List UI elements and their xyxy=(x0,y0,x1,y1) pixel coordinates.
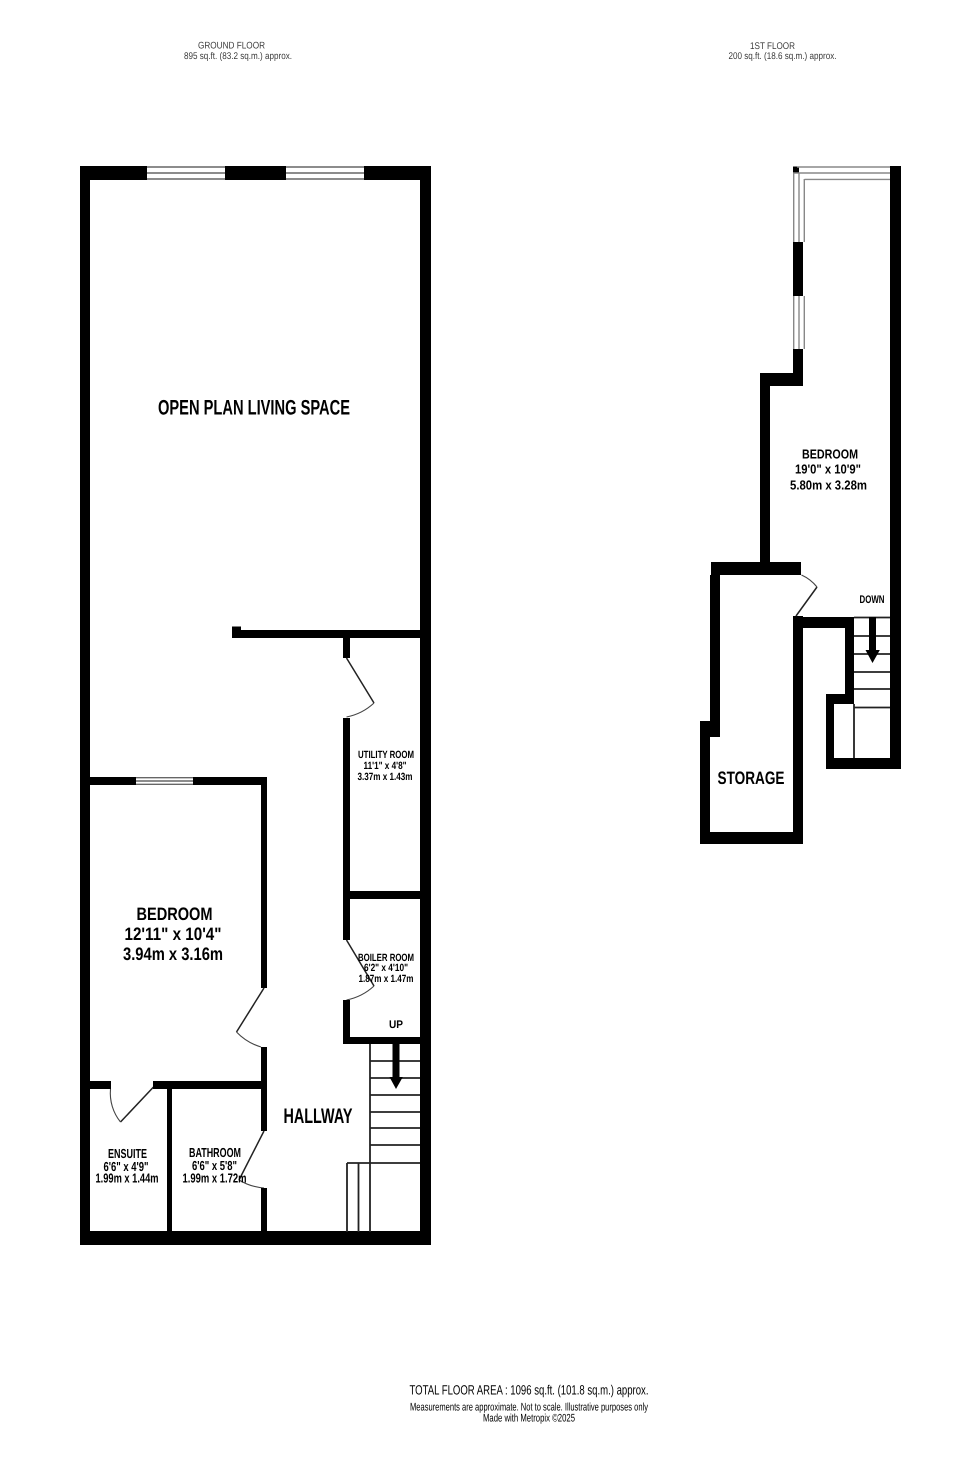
svg-text:STORAGE: STORAGE xyxy=(718,768,785,788)
svg-text:12'11" x 10'4": 12'11" x 10'4" xyxy=(125,924,222,944)
svg-text:3.94m x 3.16m: 3.94m x 3.16m xyxy=(123,944,223,964)
svg-text:1.99m x 1.72m: 1.99m x 1.72m xyxy=(183,1171,247,1186)
svg-text:5.80m x 3.28m: 5.80m x 3.28m xyxy=(790,478,867,493)
svg-text:OPEN PLAN LIVING SPACE: OPEN PLAN LIVING SPACE xyxy=(158,396,350,419)
svg-text:BEDROOM: BEDROOM xyxy=(802,447,858,462)
svg-text:TOTAL FLOOR AREA : 1096 sq.ft.: TOTAL FLOOR AREA : 1096 sq.ft. (101.8 sq… xyxy=(410,1382,649,1397)
svg-text:Made with Metropix ©2025: Made with Metropix ©2025 xyxy=(483,1412,575,1424)
svg-text:19'0" x 10'9": 19'0" x 10'9" xyxy=(795,462,861,477)
svg-text:DOWN: DOWN xyxy=(860,594,885,606)
svg-text:1.99m x 1.44m: 1.99m x 1.44m xyxy=(96,1171,159,1186)
svg-text:BEDROOM: BEDROOM xyxy=(137,904,213,924)
svg-text:UP: UP xyxy=(389,1019,403,1031)
svg-text:1.87m x 1.47m: 1.87m x 1.47m xyxy=(359,973,414,985)
svg-text:200 sq.ft. (18.6 sq.m.) approx: 200 sq.ft. (18.6 sq.m.) approx. xyxy=(729,51,837,62)
svg-text:3.37m x 1.43m: 3.37m x 1.43m xyxy=(358,771,413,783)
svg-text:HALLWAY: HALLWAY xyxy=(284,1105,353,1128)
svg-text:895 sq.ft. (83.2 sq.m.) approx: 895 sq.ft. (83.2 sq.m.) approx. xyxy=(184,51,292,62)
